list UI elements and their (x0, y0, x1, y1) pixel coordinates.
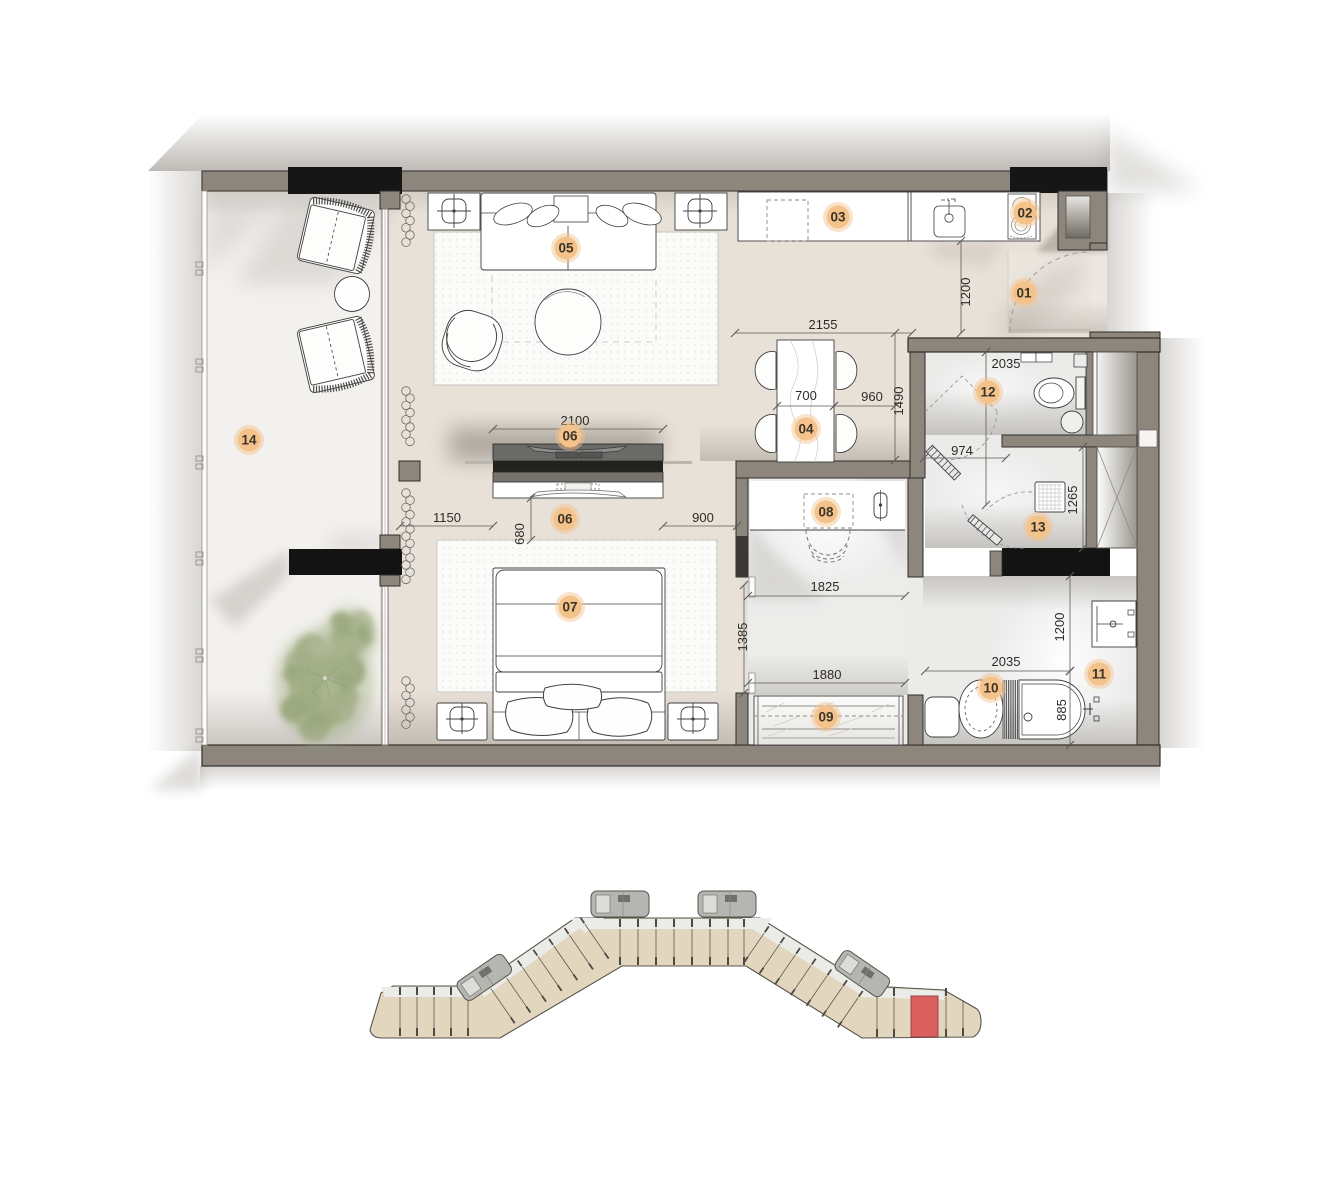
svg-text:06: 06 (562, 429, 578, 444)
svg-text:960: 960 (861, 389, 883, 404)
svg-text:1825: 1825 (811, 579, 840, 594)
svg-text:900: 900 (692, 510, 714, 525)
svg-text:12: 12 (980, 385, 995, 400)
svg-text:03: 03 (830, 210, 846, 225)
svg-text:02: 02 (1017, 206, 1032, 221)
svg-text:1490: 1490 (891, 387, 906, 416)
svg-text:1150: 1150 (433, 510, 461, 525)
svg-text:05: 05 (558, 241, 574, 256)
svg-text:13: 13 (1030, 520, 1046, 535)
svg-text:06: 06 (557, 512, 573, 527)
svg-text:07: 07 (562, 600, 577, 615)
svg-text:01: 01 (1016, 286, 1032, 301)
svg-text:680: 680 (512, 523, 527, 545)
svg-text:1385: 1385 (735, 623, 750, 652)
svg-text:2035: 2035 (992, 356, 1021, 371)
svg-text:2035: 2035 (992, 654, 1021, 669)
svg-text:14: 14 (241, 433, 257, 448)
svg-text:1200: 1200 (1052, 613, 1067, 642)
svg-text:974: 974 (951, 443, 973, 458)
svg-text:04: 04 (798, 422, 814, 437)
svg-text:1265: 1265 (1065, 486, 1080, 515)
svg-text:1200: 1200 (958, 278, 973, 307)
svg-text:1880: 1880 (813, 667, 842, 682)
svg-text:10: 10 (983, 681, 998, 696)
svg-text:08: 08 (818, 505, 834, 520)
svg-text:2155: 2155 (809, 317, 838, 332)
svg-text:700: 700 (795, 388, 817, 403)
svg-text:09: 09 (818, 710, 833, 725)
svg-text:11: 11 (1092, 667, 1107, 682)
svg-text:885: 885 (1054, 699, 1069, 721)
